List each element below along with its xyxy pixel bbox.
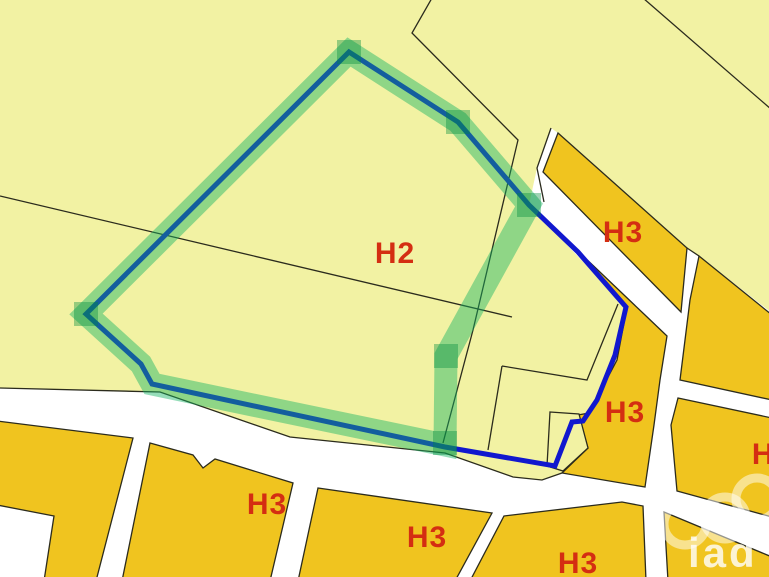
highlight-vertex-node[interactable] [337,40,361,64]
map-canvas[interactable]: H2 H3 H3 H3 H3 H3 H3 iad [0,0,769,577]
gold-parcel-bottom-center [298,488,492,577]
highlight-vertex-node[interactable] [74,302,98,326]
zone-label-h3: H3 [407,521,447,554]
zone-label-h3: H3 [558,547,598,577]
highlight-vertex-node[interactable] [433,431,457,455]
gold-parcel-bottom-left [0,421,133,577]
zone-label-h3-clipped: H3 [752,438,769,471]
zone-label-h2: H2 [375,237,415,270]
highlight-vertex-node[interactable] [434,344,458,368]
highlight-vertex-node[interactable] [446,110,470,134]
zone-label-h3: H3 [605,396,645,429]
map-viewport: H2 H3 H3 H3 H3 H3 H3 iad [0,0,769,577]
zone-label-h3: H3 [247,488,287,521]
highlight-vertex-node[interactable] [517,193,541,217]
watermark-logo-text: iad [688,529,758,576]
zone-label-h3: H3 [603,216,643,249]
